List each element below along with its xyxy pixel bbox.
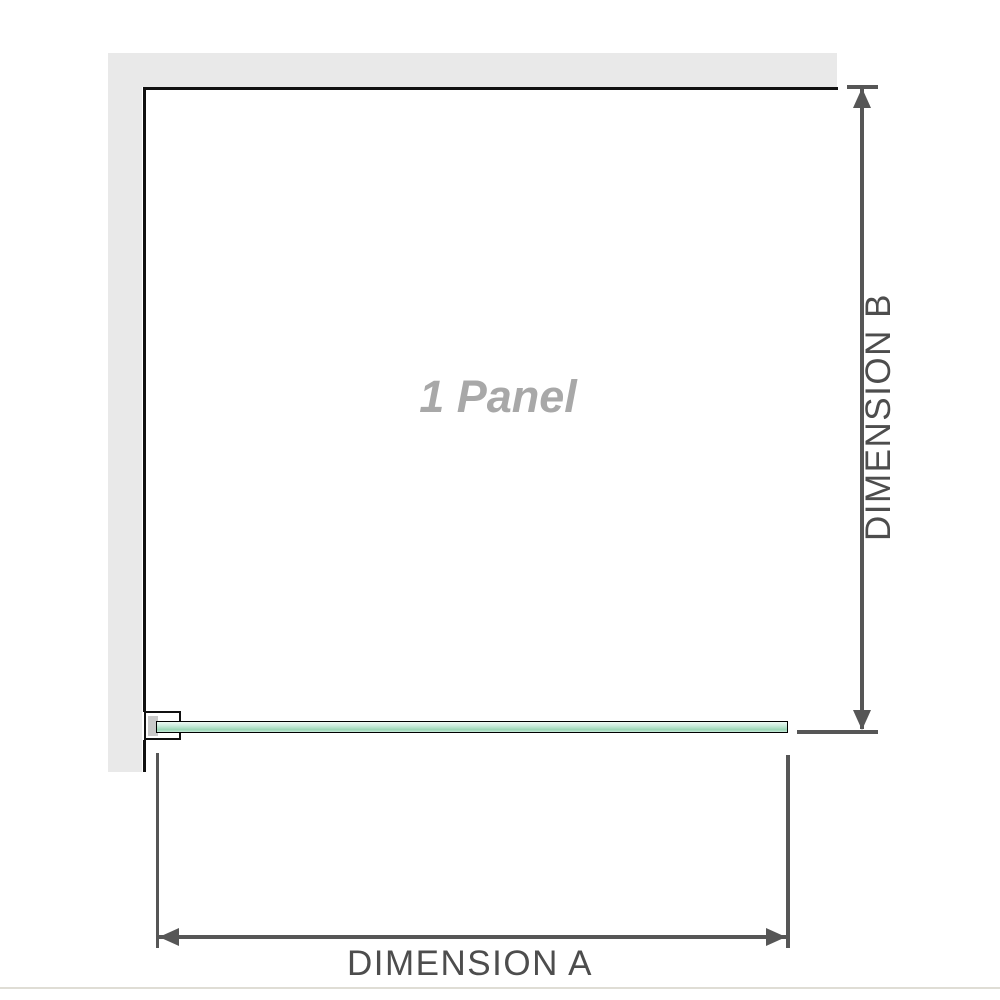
dim-a-arrowhead-left-icon [159,928,179,946]
wall-face-line-lower [143,740,146,772]
dim-b-arrowhead-top-icon [853,88,871,108]
panel-outline-top [143,87,838,90]
dim-a-line [159,935,787,939]
dim-b-arrowhead-bottom-icon [853,710,871,730]
dim-a-extension-right [786,755,790,948]
glass-panel-bar [156,721,788,733]
dim-a-arrowhead-right-icon [766,928,786,946]
panel-outline-left [143,87,146,712]
panel-dimension-diagram: 1 Panel DIMENSION B DIMENSION A [0,0,1000,1000]
dim-a-label: DIMENSION A [270,944,670,984]
dim-b-tick-bottom [797,730,878,734]
dim-a-extension-left [156,753,160,948]
wall-top-segment [108,53,837,87]
dim-b-label: DIMENSION B [864,257,894,577]
wall-left-segment [108,53,142,772]
bottom-rule [0,987,1000,989]
panel-count-label: 1 Panel [300,374,696,419]
